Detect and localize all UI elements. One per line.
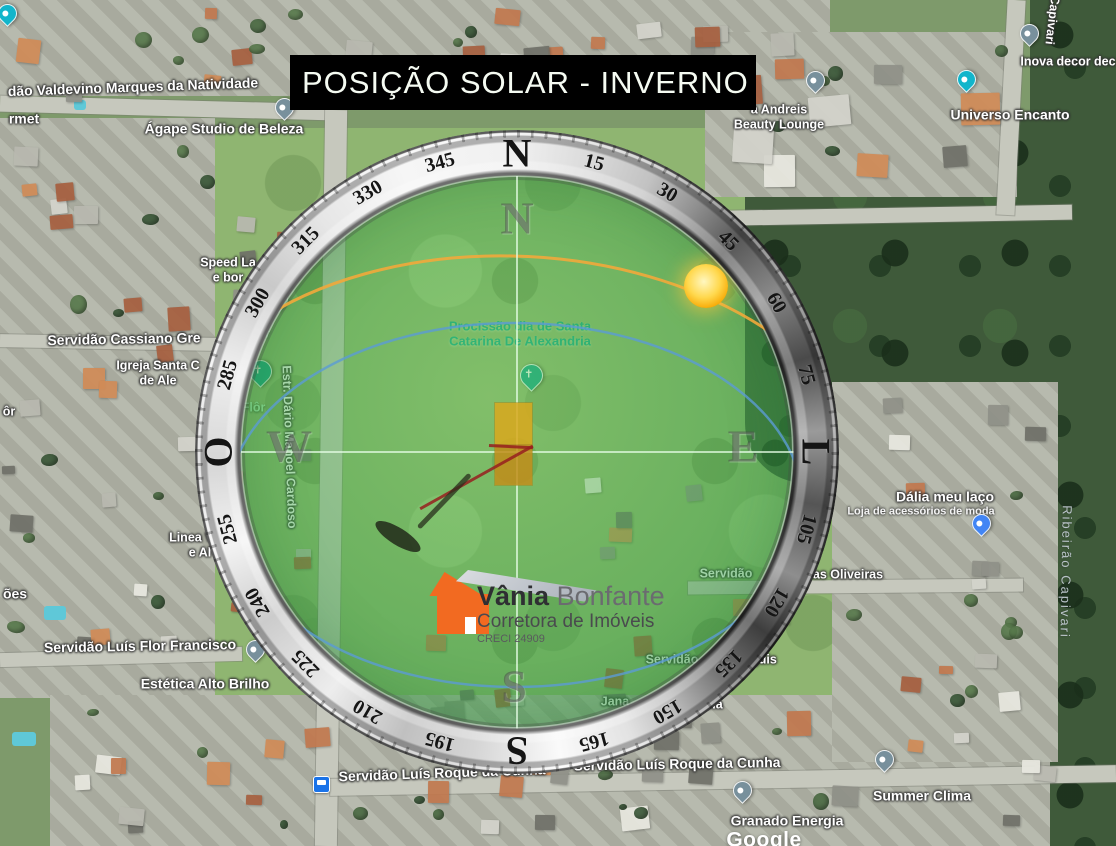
street-oes: ões [3,586,27,603]
building [20,399,41,417]
pool [44,606,66,620]
compass-ring-knurl [195,130,839,774]
building [998,691,1021,712]
poi-dalia[interactable]: Dália meu laço [896,489,994,506]
building [2,465,15,474]
building [264,739,285,759]
building [883,397,903,413]
building [74,775,89,790]
building [636,21,661,39]
building [771,32,795,56]
building [900,676,921,693]
street-luis-flor: Servidão Luís Flor Francisco [44,636,236,656]
tree [173,56,184,65]
building [118,807,145,827]
building [972,578,986,588]
building [939,666,953,675]
page-title: POSIÇÃO SOLAR - INVERNO [302,65,749,101]
building [134,584,148,597]
building [954,732,969,743]
logo-name: Vânia Bonfante [477,582,665,610]
poi-summer-clima[interactable]: Summer Clima [873,788,971,805]
building [480,819,499,833]
building [305,727,332,747]
building [1024,426,1045,441]
street-or: ôr [3,405,16,420]
poi-universo-encanto[interactable]: Universo Encanto [950,107,1069,124]
building [494,8,521,27]
map-viewport: dão Valdevino Marques da NatividadermetÁ… [0,0,1116,846]
pool [12,732,36,746]
logo-tagline: Corretora de Imóveis [477,612,665,632]
building [428,781,449,803]
building [55,182,74,201]
building [775,58,805,79]
logo-text: Vânia Bonfante Corretora de Imóveis CREC… [477,582,665,646]
tree [69,295,87,314]
building [74,206,98,224]
ring-label-S: S [506,728,528,775]
building [907,739,923,753]
building [1022,759,1040,772]
building [856,153,888,177]
building [700,723,720,744]
tree [963,593,978,607]
ring-label-N: N [503,130,532,177]
poi-inova-decor[interactable]: Inova decor dec [1020,55,1115,70]
tree [113,308,125,317]
tree [353,807,368,820]
logo-creci: CRECI 24909 [477,634,665,646]
tree [249,44,265,54]
building [942,145,968,168]
building [694,27,720,48]
building [535,815,555,830]
building [246,795,263,806]
building [111,758,126,774]
building [123,298,142,314]
poi-rmet: rmet [9,111,39,128]
building [889,435,910,451]
tree [465,26,477,39]
building [786,711,810,737]
tree [414,795,425,804]
google-watermark: Google [726,829,801,846]
poi-agape[interactable]: Ágape Studio de Beleza [145,121,304,138]
tree [1009,626,1023,639]
poi-dalia-sub[interactable]: Loja de acessórios de moda [847,506,994,519]
building [873,64,902,84]
ring-label-L: L [793,439,840,466]
tree [153,492,164,501]
title-banner: POSIÇÃO SOLAR - INVERNO [290,55,756,110]
building [205,8,217,19]
building [22,183,39,196]
building [13,146,38,166]
tree [23,533,35,543]
building [101,493,116,508]
building [832,785,859,806]
building [16,37,41,64]
building [982,561,999,576]
poi-granado-energia[interactable]: Granado Energia [731,813,844,830]
building [99,380,118,397]
building [1002,814,1019,825]
street-cassiano: Servidão Cassiano Gre [47,329,201,348]
building [50,214,74,230]
bus-stop-icon[interactable] [313,776,330,793]
poi-estetica[interactable]: Estética Alto Brilho [141,676,270,693]
tree [812,792,828,809]
building [988,405,1008,426]
ring-label-O: O [195,436,242,467]
building [206,762,229,785]
tree [280,820,288,829]
building [236,216,256,233]
building [167,306,191,332]
poi-igreja-santa[interactable]: Igreja Santa C de Ale [116,358,199,388]
water-ribeirao-capivari: Ribeirão Capivari [1057,505,1075,639]
street-oliveiras-b: as Oliveiras [813,568,883,583]
building [974,653,997,668]
tree [950,694,966,707]
building [591,36,606,49]
building [10,514,34,533]
